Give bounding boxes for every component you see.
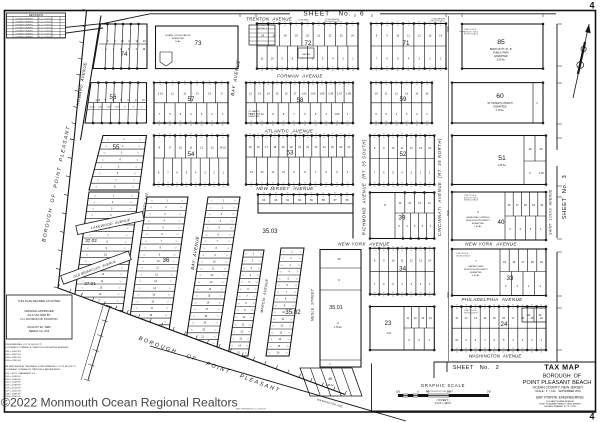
svg-text:50: 50	[540, 305, 542, 307]
svg-text:50: 50	[230, 228, 232, 230]
svg-text:50: 50	[281, 265, 283, 267]
svg-text:50: 50	[219, 302, 221, 304]
svg-text:50: 50	[302, 70, 304, 72]
svg-text:50: 50	[136, 159, 138, 161]
svg-text:50: 50	[302, 66, 304, 68]
svg-text:50: 50	[375, 81, 377, 83]
svg-text:13.07 = 1165 S.F.: 13.07 = 1165 S.F.	[4, 390, 21, 392]
svg-text:50: 50	[169, 121, 171, 123]
svg-text:50: 50	[276, 84, 278, 86]
svg-text:50: 50	[180, 124, 182, 126]
svg-text:50: 50	[374, 292, 376, 294]
svg-text:50: 50	[429, 25, 431, 27]
svg-text:50: 50	[322, 193, 324, 195]
svg-text:50: 50	[401, 296, 403, 298]
svg-text:50: 50	[340, 134, 342, 136]
svg-text:SOUTHEAST CORNER OF TRENTON &: SOUTHEAST CORNER OF TRENTON & BAY AVENUE…	[4, 368, 61, 371]
svg-text:50: 50	[81, 294, 83, 296]
svg-text:50: 50	[174, 254, 176, 256]
svg-text:50: 50	[283, 121, 285, 123]
svg-text:50: 50	[89, 235, 91, 237]
svg-text:50: 50	[273, 25, 275, 27]
svg-text:50: 50	[172, 268, 174, 270]
svg-text:50: 50	[304, 124, 306, 126]
svg-text:50: 50	[386, 22, 388, 24]
svg-text:50: 50	[209, 214, 211, 216]
svg-text:50: 50	[132, 187, 134, 189]
svg-text:1.36 Ac.: 1.36 Ac.	[326, 384, 335, 387]
svg-text:50: 50	[397, 66, 399, 68]
svg-text:50: 50	[296, 279, 298, 281]
svg-text:50: 50	[282, 134, 284, 136]
svg-text:50: 50	[266, 134, 268, 136]
svg-text:50: 50	[440, 25, 442, 27]
svg-text:50: 50	[272, 326, 274, 328]
svg-text:50: 50	[283, 124, 285, 126]
svg-text:50: 50	[239, 296, 241, 298]
svg-text:50: 50	[267, 81, 269, 83]
svg-text:50: 50	[323, 134, 325, 136]
svg-text:50: 50	[131, 195, 133, 197]
svg-text:50: 50	[299, 134, 301, 136]
svg-text:50: 50	[192, 323, 194, 325]
svg-text:50: 50	[231, 346, 233, 348]
svg-text:50: 50	[259, 81, 261, 83]
svg-text:BAY POINTE ENGINEERING: BAY POINTE ENGINEERING	[536, 396, 584, 400]
svg-text:1.03: 1.03	[302, 92, 308, 96]
svg-text:50: 50	[82, 287, 84, 289]
svg-text:50: 50	[258, 268, 260, 270]
svg-text:50: 50	[195, 302, 197, 304]
svg-text:2.69 Ac.: 2.69 Ac.	[497, 59, 506, 62]
svg-text:50: 50	[416, 121, 418, 123]
svg-text:51: 51	[498, 155, 506, 162]
svg-text:50: 50	[540, 308, 542, 310]
svg-text:50: 50	[194, 309, 196, 311]
svg-text:50: 50	[332, 70, 334, 72]
svg-text:50: 50	[426, 84, 428, 86]
svg-text:50: 50	[293, 121, 295, 123]
svg-text:50: 50	[299, 193, 301, 195]
svg-text:50: 50	[250, 124, 252, 126]
svg-text:50: 50	[261, 124, 263, 126]
svg-text:50: 50	[383, 292, 385, 294]
svg-text:BY THE SEA: BY THE SEA	[248, 113, 260, 116]
svg-text:50: 50	[340, 137, 342, 139]
svg-text:50: 50	[221, 84, 223, 86]
svg-text:50: 50	[348, 134, 350, 136]
svg-text:50: 50	[141, 268, 143, 270]
svg-text:50: 50	[186, 186, 188, 188]
svg-text:SEE MB.24 MB.28: SEE MB.24 MB.28	[464, 312, 478, 314]
svg-text:56: 56	[110, 94, 117, 101]
svg-text:50: 50	[119, 287, 121, 289]
svg-text:50: 50	[307, 22, 309, 24]
svg-text:50: 50	[315, 182, 317, 184]
svg-text:50: 50	[376, 66, 378, 68]
svg-text:50: 50	[127, 228, 129, 230]
svg-text:50: 50	[247, 338, 249, 340]
svg-text:50: 50	[383, 137, 385, 139]
svg-text:50: 50	[465, 348, 467, 350]
svg-text:50: 50	[238, 303, 240, 305]
svg-text:50: 50	[336, 121, 338, 123]
svg-text:1.76 Ac.: 1.76 Ac.	[334, 326, 343, 329]
svg-text:50: 50	[169, 134, 171, 136]
svg-text:50: 50	[165, 315, 167, 317]
svg-text:50: 50	[385, 84, 387, 86]
svg-text:50: 50	[420, 292, 422, 294]
svg-text:50: 50	[408, 66, 410, 68]
svg-text:37.01: 37.01	[84, 281, 96, 286]
svg-text:50: 50	[221, 289, 223, 291]
svg-text:50: 50	[416, 81, 418, 83]
svg-text:P.L.S. 21762 NJ: P.L.S. 21762 NJ	[38, 27, 52, 29]
svg-text:50: 50	[336, 186, 338, 188]
svg-text:50: 50	[456, 308, 458, 310]
svg-text:SEE SHT. 4: SEE SHT. 4	[257, 28, 268, 30]
svg-text:50: 50	[311, 196, 313, 198]
svg-text:50: 50	[159, 84, 161, 86]
svg-text:50: 50	[312, 81, 314, 83]
svg-text:50: 50	[261, 70, 263, 72]
svg-text:200: 200	[487, 391, 492, 394]
svg-text:50: 50	[270, 339, 272, 341]
svg-text:50: 50	[322, 66, 324, 68]
svg-text:50: 50	[386, 25, 388, 27]
svg-text:SEE NOTE BELOW: SEE NOTE BELOW	[324, 21, 340, 23]
svg-text:50: 50	[429, 247, 431, 249]
svg-text:50: 50	[540, 348, 542, 350]
svg-text:500: 500	[446, 26, 450, 31]
svg-text:50: 50	[100, 166, 102, 168]
svg-text:50: 50	[196, 84, 198, 86]
svg-text:50: 50	[92, 209, 94, 211]
svg-text:50: 50	[289, 326, 291, 328]
svg-text:50: 50	[285, 84, 287, 86]
svg-text:53: 53	[287, 150, 294, 157]
svg-text:50: 50	[240, 289, 242, 291]
svg-text:50: 50	[347, 186, 349, 188]
svg-text:50: 50	[297, 272, 299, 274]
svg-text:50: 50	[416, 84, 418, 86]
svg-text:50: 50	[168, 295, 170, 297]
svg-text:50: 50	[222, 121, 224, 123]
svg-text:50: 50	[262, 25, 264, 27]
svg-text:50: 50	[410, 186, 412, 188]
svg-text:50: 50	[211, 124, 213, 126]
svg-text:50: 50	[285, 81, 287, 83]
svg-text:SHEET No. 2: SHEET No. 2	[453, 365, 499, 371]
svg-text:50: 50	[250, 182, 252, 184]
svg-text:50: 50	[220, 296, 222, 298]
svg-text:FORMAN AVENUE: FORMAN AVENUE	[277, 74, 323, 79]
svg-text:50: 50	[227, 248, 229, 250]
svg-text:50: 50	[347, 124, 349, 126]
svg-text:50: 50	[522, 305, 524, 307]
svg-text:50: 50	[266, 137, 268, 139]
svg-text:50: 50	[274, 137, 276, 139]
svg-text:13.02 = 1148 S.F.: 13.02 = 1148 S.F.	[4, 376, 21, 378]
svg-text:50: 50	[293, 299, 295, 301]
svg-text:50: 50	[342, 66, 344, 68]
svg-text:50: 50	[282, 258, 284, 260]
svg-text:50: 50	[339, 84, 341, 86]
svg-text:50: 50	[406, 124, 408, 126]
svg-text:33: 33	[507, 275, 514, 282]
svg-text:N.J. DIVISION OF TAXATION: N.J. DIVISION OF TAXATION	[21, 317, 58, 321]
svg-text:24.04 = 1280 S.F.: 24.04 = 1280 S.F.	[4, 360, 22, 362]
svg-text:14.01: 14.01	[220, 146, 227, 150]
svg-text:50: 50	[299, 258, 301, 260]
svg-text:50: 50	[376, 22, 378, 24]
svg-text:50: 50	[456, 348, 458, 350]
svg-text:50: 50	[418, 66, 420, 68]
svg-text:50: 50	[206, 235, 208, 237]
svg-text:50: 50	[251, 310, 253, 312]
svg-text:50: 50	[117, 301, 119, 303]
svg-text:50: 50	[287, 193, 289, 195]
svg-text:50: 50	[315, 124, 317, 126]
svg-text:50: 50	[410, 182, 412, 184]
svg-text:50: 50	[334, 193, 336, 195]
svg-text:50: 50	[396, 124, 398, 126]
svg-text:50: 50	[269, 353, 271, 355]
svg-text:50: 50	[177, 234, 179, 236]
svg-text:50: 50	[222, 282, 224, 284]
svg-text:50: 50	[250, 186, 252, 188]
svg-text:2.79 Ac.: 2.79 Ac.	[496, 109, 505, 112]
svg-text:50: 50	[137, 153, 139, 155]
svg-text:50: 50	[374, 182, 376, 184]
svg-text:50: 50	[325, 124, 327, 126]
svg-text:THOMAS GRABER: THOMAS GRABER	[15, 29, 33, 32]
svg-text:50: 50	[465, 351, 467, 353]
svg-text:50: 50	[211, 121, 213, 123]
svg-text:50: 50	[234, 201, 236, 203]
svg-text:50: 50	[375, 124, 377, 126]
svg-text:50: 50	[146, 234, 148, 236]
svg-text:50: 50	[300, 252, 302, 254]
svg-text:50: 50	[180, 134, 182, 136]
svg-text:50: 50	[276, 299, 278, 301]
svg-text:50: 50	[118, 294, 120, 296]
svg-text:50: 50	[374, 250, 376, 252]
svg-text:50: 50	[322, 196, 324, 198]
svg-text:50: 50	[287, 346, 289, 348]
svg-text:50: 50	[531, 305, 533, 307]
svg-text:WATER PLANT: WATER PLANT	[468, 265, 484, 268]
svg-text:50: 50	[246, 346, 248, 348]
svg-text:504 HAWTHORNE AVENUE: 504 HAWTHORNE AVENUE	[546, 400, 574, 403]
svg-text:50: 50	[375, 84, 377, 86]
svg-text:50: 50	[288, 333, 290, 335]
svg-text:50: 50	[145, 241, 147, 243]
svg-text:50: 50	[456, 305, 458, 307]
svg-text:50: 50	[271, 66, 273, 68]
svg-text:1.92 Ac.: 1.92 Ac.	[474, 225, 482, 228]
svg-text:50: 50	[293, 182, 295, 184]
svg-text:50: 50	[198, 282, 200, 284]
svg-text:50: 50	[204, 186, 206, 188]
svg-text:50: 50	[232, 214, 234, 216]
svg-text:50: 50	[94, 195, 96, 197]
svg-text:50: 50	[307, 137, 309, 139]
svg-text:50: 50	[216, 323, 218, 325]
svg-text:50: 50	[167, 301, 169, 303]
svg-text:50: 50	[325, 121, 327, 123]
svg-text:50: 50	[383, 296, 385, 298]
svg-text:50: 50	[392, 186, 394, 188]
svg-text:50: 50	[346, 193, 348, 195]
svg-text:50: 50	[139, 139, 141, 141]
svg-text:50: 50	[397, 25, 399, 27]
svg-text:50: 50	[475, 305, 477, 307]
svg-text:50: 50	[204, 182, 206, 184]
svg-text:50: 50	[181, 201, 183, 203]
svg-text:50: 50	[173, 261, 175, 263]
svg-text:50: 50	[440, 66, 442, 68]
svg-text:50: 50	[197, 289, 199, 291]
svg-text:50: 50	[420, 137, 422, 139]
svg-text:50: 50	[410, 292, 412, 294]
svg-text:50: 50	[484, 348, 486, 350]
svg-text:50: 50	[340, 22, 342, 24]
svg-text:50: 50	[201, 121, 203, 123]
svg-text:BOROUGH PROPERTY: BOROUGH PROPERTY	[466, 220, 490, 222]
svg-text:85: 85	[497, 39, 505, 46]
svg-text:50: 50	[172, 81, 174, 83]
svg-text:40: 40	[498, 219, 505, 226]
svg-text:50: 50	[139, 288, 141, 290]
svg-text:50: 50	[440, 70, 442, 72]
svg-text:500: 500	[446, 210, 450, 215]
svg-text:50: 50	[295, 25, 297, 27]
svg-text:50: 50	[426, 81, 428, 83]
svg-text:59: 59	[400, 96, 407, 103]
svg-text:36: 36	[163, 257, 170, 264]
svg-text:50: 50	[255, 289, 257, 291]
svg-text:WASHINGTON AVENUE: WASHINGTON AVENUE	[469, 354, 522, 359]
svg-text:10: 10	[337, 257, 341, 261]
svg-text:50: 50	[426, 124, 428, 126]
svg-text:50: 50	[223, 182, 225, 184]
svg-text:50: 50	[410, 250, 412, 252]
svg-text:50: 50	[312, 70, 314, 72]
svg-text:50: 50	[503, 305, 505, 307]
svg-text:50: 50	[311, 193, 313, 195]
svg-text:SHEET No. 3: SHEET No. 3	[562, 175, 568, 220]
svg-text:50: 50	[158, 186, 160, 188]
svg-text:50: 50	[184, 81, 186, 83]
svg-text:50: 50	[383, 250, 385, 252]
svg-text:SEE MB.24 MB.28: SEE MB.24 MB.28	[464, 200, 478, 202]
svg-text:23: 23	[385, 320, 392, 327]
svg-text:50: 50	[164, 322, 166, 324]
svg-text:50: 50	[420, 247, 422, 249]
svg-text:50: 50	[261, 182, 263, 184]
svg-text:50: 50	[295, 285, 297, 287]
svg-text:50: 50	[322, 70, 324, 72]
svg-text:50: 50	[175, 248, 177, 250]
svg-text:50: 50	[95, 187, 97, 189]
svg-text:50: 50	[385, 124, 387, 126]
svg-text:50: 50	[178, 221, 180, 223]
svg-text:50: 50	[429, 137, 431, 139]
svg-text:50: 50	[475, 348, 477, 350]
svg-text:50: 50	[429, 186, 431, 188]
svg-text:50: 50	[186, 182, 188, 184]
svg-text:50: 50	[196, 81, 198, 83]
svg-text:50: 50	[410, 296, 412, 298]
svg-text:50: 50	[401, 292, 403, 294]
svg-text:50: 50	[374, 296, 376, 298]
svg-text:50: 50	[203, 248, 205, 250]
svg-text:50: 50	[102, 159, 104, 161]
svg-text:50: 50	[213, 182, 215, 184]
svg-text:50: 50	[86, 255, 88, 257]
svg-text:P.L.S. 21762 NJ: P.L.S. 21762 NJ	[38, 33, 52, 35]
svg-text:50: 50	[392, 134, 394, 136]
svg-text:50: 50	[250, 84, 252, 86]
svg-text:1.08: 1.08	[346, 92, 352, 96]
svg-text:50: 50	[260, 254, 262, 256]
svg-text:50: 50	[201, 262, 203, 264]
svg-text:50: 50	[352, 70, 354, 72]
svg-text:50: 50	[176, 186, 178, 188]
svg-text:50: 50	[214, 336, 216, 338]
svg-text:TRENTON AVENUE: TRENTON AVENUE	[246, 17, 292, 22]
svg-text:EXEMPTED: EXEMPTED	[470, 272, 482, 274]
svg-text:50: 50	[244, 261, 246, 263]
svg-text:50: 50	[207, 228, 209, 230]
svg-text:BOARD OF EDUCATION: BOARD OF EDUCATION	[166, 34, 191, 37]
svg-text:50: 50	[167, 186, 169, 188]
svg-text:50: 50	[418, 70, 420, 72]
svg-text:50: 50	[241, 282, 243, 284]
svg-text:50: 50	[158, 182, 160, 184]
svg-text:13.04 = 1148 S.F.: 13.04 = 1148 S.F.	[4, 382, 21, 384]
svg-text:50: 50	[540, 351, 542, 353]
svg-text:50: 50	[133, 180, 135, 182]
svg-text:50: 50	[294, 292, 296, 294]
svg-text:50: 50	[190, 121, 192, 123]
svg-text:50: 50	[245, 254, 247, 256]
svg-text:50: 50	[171, 275, 173, 277]
svg-text:19: 19	[528, 147, 532, 151]
svg-text:50: 50	[144, 248, 146, 250]
svg-text:50: 50	[340, 25, 342, 27]
svg-text:50: 50	[292, 70, 294, 72]
svg-text:50: 50	[522, 348, 524, 350]
svg-text:35.01: 35.01	[329, 305, 343, 311]
svg-text:P.L.S. 21762 NJ: P.L.S. 21762 NJ	[38, 21, 52, 23]
svg-text:50: 50	[191, 330, 193, 332]
svg-text:50: 50	[136, 308, 138, 310]
svg-text:50: 50	[271, 333, 273, 335]
svg-text:50: 50	[298, 265, 300, 267]
svg-text:50: 50	[259, 84, 261, 86]
svg-text:50: 50	[321, 81, 323, 83]
svg-text:50: 50	[383, 186, 385, 188]
svg-text:50: 50	[392, 296, 394, 298]
svg-text:50: 50	[97, 180, 99, 182]
svg-text:50: 50	[275, 196, 277, 198]
svg-text:50: 50	[272, 121, 274, 123]
svg-text:5 13: 5 13	[158, 92, 164, 96]
svg-text:50: 50	[273, 319, 275, 321]
svg-text:50: 50	[226, 255, 228, 257]
